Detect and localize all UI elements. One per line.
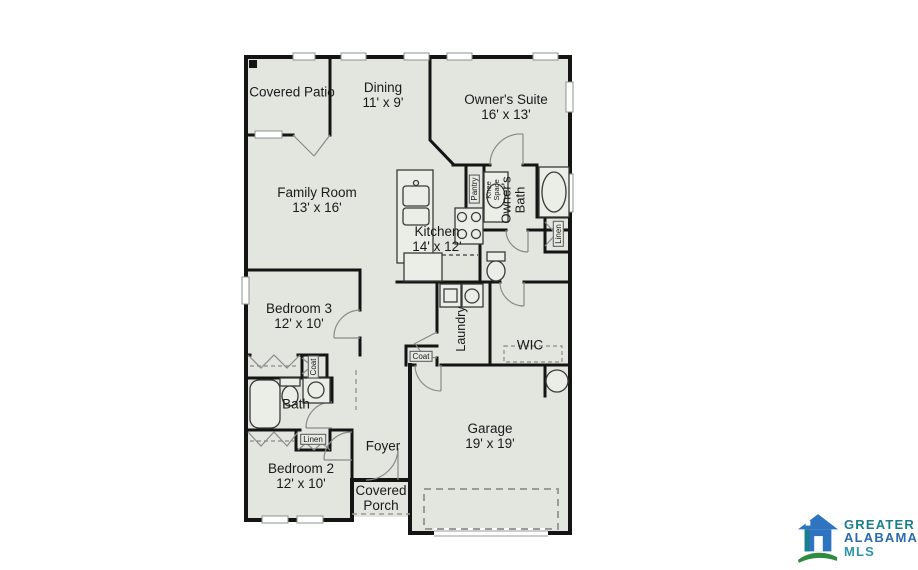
closet-label-linen-owners: Linen: [555, 221, 563, 247]
mls-house-icon: [797, 512, 839, 564]
room-label-covered-patio: Covered Patio: [249, 86, 335, 101]
closet-label-coat-hall: Coat: [410, 353, 433, 361]
closet-label-pantry: Pantry: [471, 174, 479, 203]
room-label-kitchen: Kitchen 14' x 12': [412, 225, 461, 255]
room-label-bedroom2: Bedroom 2 12' x 10': [268, 462, 334, 492]
closet-label-linen-hall: Linen: [300, 436, 326, 444]
room-label-garage: Garage 19' x 19': [465, 422, 514, 452]
floor-plan-drawing: [0, 0, 918, 570]
patio-post: [249, 60, 257, 68]
room-label-family-room: Family Room 13' x 16': [277, 186, 357, 216]
room-label-dining: Dining 11' x 9': [363, 81, 404, 111]
floor-plan-page: Covered Patio Dining 11' x 9' Owner's Su…: [0, 0, 918, 570]
mls-logo-text: GREATER ALABAMA MLS: [844, 518, 918, 558]
water-heater: [546, 370, 568, 392]
room-label-owners-suite: Owner's Suite 16' x 13': [464, 93, 548, 123]
room-label-wic: WIC: [517, 339, 543, 354]
room-label-bedroom3: Bedroom 3 12' x 10': [266, 302, 332, 332]
washer-dryer: [440, 284, 483, 307]
room-label-covered-porch: Covered Porch: [349, 484, 413, 514]
closet-label-knee-space: Knee Space: [485, 175, 501, 205]
closet-label-coat-bedroom: Coat: [310, 356, 318, 379]
logo-line-greater: GREATER: [844, 518, 918, 531]
logo-line-mls: MLS: [844, 545, 918, 558]
greater-alabama-mls-logo: GREATER ALABAMA MLS: [797, 512, 918, 564]
room-label-foyer: Foyer: [366, 440, 401, 455]
logo-line-alabama: ALABAMA: [844, 531, 918, 544]
room-label-bath: Bath: [282, 398, 310, 413]
room-label-laundry: Laundry: [455, 306, 469, 351]
room-label-owners-bath: Owner's Bath: [500, 168, 529, 232]
